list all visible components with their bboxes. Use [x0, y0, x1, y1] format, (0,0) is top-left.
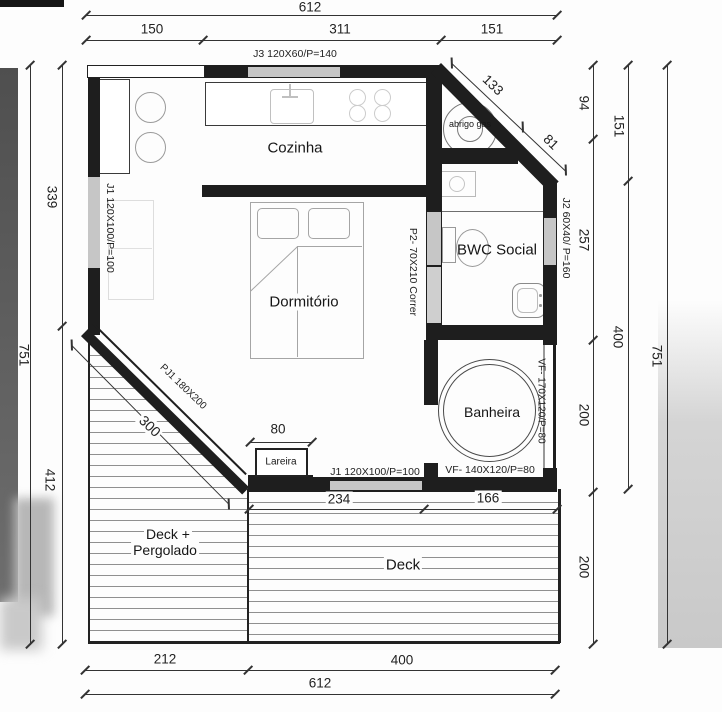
- bwc-divider-line: [442, 211, 543, 212]
- label-j3: J3 120X60/P=140: [253, 48, 337, 60]
- wall-kitchen-bedroom: [202, 185, 432, 197]
- dim-tick: [228, 498, 230, 509]
- dim-line: [86, 40, 557, 41]
- pillow: [257, 208, 299, 239]
- stove-burner: [349, 89, 366, 106]
- scan-artifact-topbar: [0, 0, 64, 7]
- wall-bwc-bottom: [426, 325, 557, 340]
- label-vf170: VF- 170X120/P=80: [536, 358, 547, 443]
- label-p2: P2- 70X210 Correr: [407, 228, 419, 316]
- dim-lareira-80: 80: [270, 422, 285, 437]
- dim-line: [249, 509, 557, 510]
- scan-artifact-blob2: [0, 598, 42, 650]
- wall-abrigo-bottom: [442, 148, 518, 164]
- wall-top-left-band: [87, 65, 205, 78]
- dim-top-150: 150: [141, 22, 164, 37]
- dim-right-751: 751: [650, 345, 665, 368]
- label-vf140: VF- 140X120/P=80: [445, 464, 535, 476]
- dim-line: [85, 670, 555, 671]
- washbasin-bowl: [449, 176, 465, 192]
- room-label-deck-pergolado-2: Pergolado: [131, 542, 199, 558]
- dim-tick: [565, 164, 567, 175]
- lareira-base: [248, 475, 313, 492]
- stove-burner: [374, 89, 391, 106]
- deck-divider: [247, 489, 249, 642]
- bed-blanket-line: [297, 246, 362, 247]
- dim-left-339: 339: [45, 186, 60, 209]
- door-p2-sliding: [427, 267, 441, 323]
- label-j1-left: J1 120X100/P=100: [104, 183, 116, 273]
- dim-top-total: 612: [299, 0, 322, 15]
- dim-right-200b: 200: [577, 556, 592, 579]
- deck-border-left: [88, 334, 90, 642]
- dim-line: [593, 65, 594, 645]
- kitchen-side-counter: [98, 79, 130, 174]
- toilet-tank: [442, 227, 456, 263]
- dim-line: [85, 694, 555, 695]
- room-label-cozinha: Cozinha: [267, 140, 322, 157]
- label-j1-bottom: J1 120X100/P=100: [330, 466, 420, 478]
- wall-banheira-left-upper: [424, 340, 438, 405]
- room-label-dormitorio: Dormitório: [267, 294, 340, 311]
- dim-right-94: 94: [577, 95, 592, 110]
- dim-line: [667, 65, 668, 645]
- dim-left-412: 412: [43, 469, 58, 492]
- room-label-lareira: Lareira: [265, 457, 296, 468]
- dim-right-151: 151: [612, 115, 627, 138]
- deck-border-bottom: [88, 641, 560, 644]
- dim-line: [86, 15, 557, 16]
- dim-line: [62, 65, 63, 645]
- floor-plan: Cozinha Dormitório BWC Social Banheira L…: [0, 0, 722, 712]
- dim-bot-total: 612: [309, 676, 332, 691]
- stool: [135, 132, 166, 163]
- deck-border-right: [558, 489, 561, 643]
- dim-right-200a: 200: [577, 404, 592, 427]
- bwc-sink-inner: [517, 288, 538, 313]
- stove-burner: [349, 105, 366, 122]
- window-j3: [248, 67, 340, 77]
- dim-top-311: 311: [329, 22, 351, 37]
- stove-burner: [374, 105, 391, 122]
- kitchen-counter: [205, 82, 429, 126]
- faucet-bar-icon: [282, 96, 298, 98]
- door-p2-track-upper: [427, 212, 441, 265]
- dim-bot-212: 212: [154, 652, 177, 667]
- dim-right-257: 257: [577, 229, 592, 252]
- sink-dot: [539, 304, 542, 307]
- dim-bot-166: 166: [475, 491, 502, 506]
- kitchen-sink: [270, 89, 314, 124]
- window-vf170-outer-line: [553, 345, 557, 468]
- dim-line: [628, 65, 629, 490]
- room-label-bwc: BWC Social: [457, 242, 537, 259]
- pillow: [308, 208, 350, 239]
- dim-bot-400: 400: [391, 653, 414, 668]
- stool: [135, 92, 166, 123]
- dim-top-151: 151: [481, 22, 504, 37]
- room-label-banheira: Banheira: [462, 404, 522, 420]
- dim-left-751: 751: [17, 344, 32, 367]
- dim-right-400: 400: [611, 326, 626, 349]
- window-j2: [544, 218, 556, 265]
- label-j2: J2 60X40/ P=160: [560, 198, 572, 279]
- dim-bot-234: 234: [326, 492, 353, 507]
- label-abrigo-gas: abrigo gas: [449, 119, 491, 129]
- room-label-deck-pergolado-1: Deck +: [144, 526, 192, 542]
- dim-tick: [71, 339, 73, 350]
- dim-tick: [522, 121, 524, 132]
- room-label-deck: Deck: [384, 557, 422, 574]
- sink-dot: [539, 294, 542, 297]
- window-j1-left: [88, 177, 100, 268]
- window-j1-bottom: [330, 481, 422, 490]
- dim-tick: [451, 57, 453, 68]
- dim-line: [250, 442, 312, 443]
